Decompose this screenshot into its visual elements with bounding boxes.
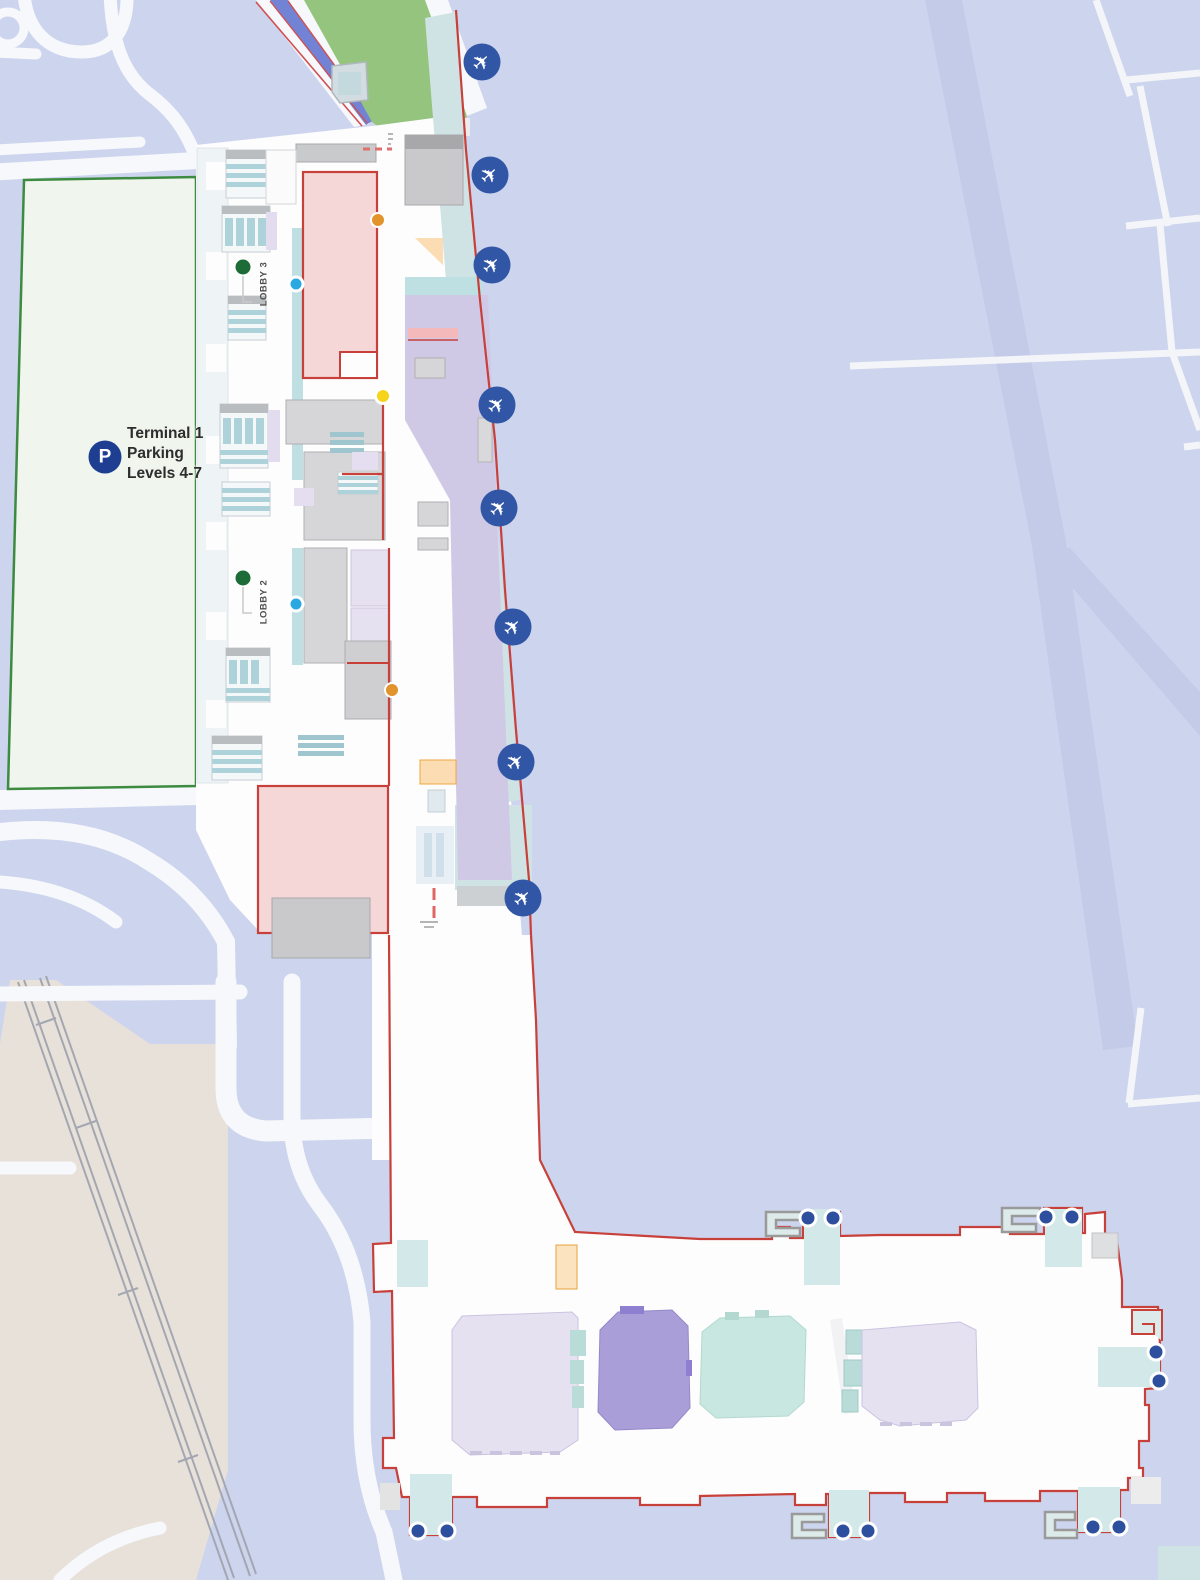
parking-icon[interactable]: P (89, 441, 122, 474)
gate-plane-icon[interactable]: ✈ (495, 609, 532, 646)
airplane-icon: ✈ (502, 748, 530, 777)
checkpoint-marker[interactable] (370, 212, 386, 228)
airplane-icon: ✈ (478, 251, 506, 280)
gate-dot-marker[interactable] (1063, 1208, 1082, 1227)
gate-plane-icon[interactable]: ✈ (481, 490, 518, 527)
information-marker[interactable] (374, 387, 392, 405)
gate-plane-icon[interactable]: ✈ (472, 157, 509, 194)
gate-dot-marker[interactable] (859, 1522, 878, 1541)
airplane-icon: ✈ (476, 161, 504, 190)
gate-plane-icon[interactable]: ✈ (505, 880, 542, 917)
gate-dot-marker[interactable] (824, 1209, 843, 1228)
lobby-entrance-marker[interactable] (288, 276, 305, 293)
gate-dot-marker[interactable] (1037, 1208, 1056, 1227)
gate-dot-marker[interactable] (1084, 1518, 1103, 1537)
gate-dot-marker[interactable] (1147, 1343, 1166, 1362)
gate-dot-marker[interactable] (409, 1522, 428, 1541)
airplane-icon: ✈ (468, 48, 496, 77)
gate-dot-marker[interactable] (1110, 1518, 1129, 1537)
gate-plane-icon[interactable]: ✈ (464, 44, 501, 81)
curbside-marker[interactable] (236, 260, 251, 275)
airport-terminal-map: Terminal 1 Parking Levels 4-7 LOBBY 3 LO… (0, 0, 1200, 1580)
gate-dot-marker[interactable] (1150, 1372, 1169, 1391)
airplane-icon: ✈ (483, 391, 511, 420)
curbside-marker[interactable] (236, 571, 251, 586)
gate-dot-marker[interactable] (799, 1209, 818, 1228)
gate-plane-icon[interactable]: ✈ (474, 247, 511, 284)
gate-dot-marker[interactable] (438, 1522, 457, 1541)
gate-plane-icon[interactable]: ✈ (498, 744, 535, 781)
gate-dot-marker[interactable] (834, 1522, 853, 1541)
lobby-entrance-marker[interactable] (288, 596, 305, 613)
gate-plane-icon[interactable]: ✈ (479, 387, 516, 424)
airplane-icon: ✈ (509, 884, 537, 913)
map-markers-layer: ✈✈✈✈✈✈✈✈P (0, 0, 1200, 1580)
checkpoint-marker[interactable] (384, 682, 400, 698)
airplane-icon: ✈ (485, 494, 513, 523)
airplane-icon: ✈ (499, 613, 527, 642)
